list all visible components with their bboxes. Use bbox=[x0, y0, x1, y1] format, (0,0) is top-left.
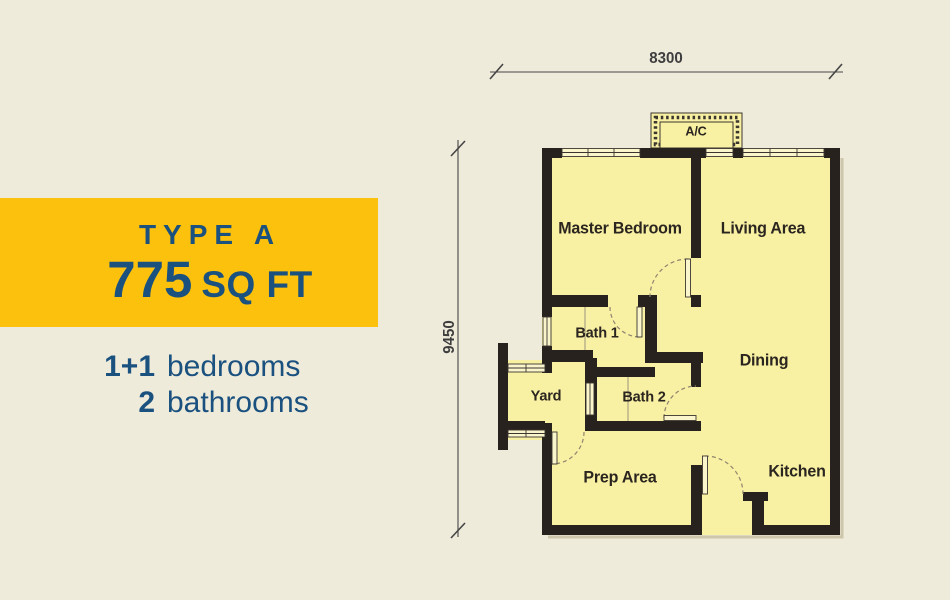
room-label-yard: Yard bbox=[531, 388, 562, 405]
height-dimension-label: 9450 bbox=[441, 320, 459, 353]
yard-top-window bbox=[508, 364, 545, 372]
entrance-door-leaf bbox=[703, 456, 708, 494]
living-area-window bbox=[743, 149, 824, 157]
room-label-living-area: Living Area bbox=[721, 220, 805, 239]
master-bedroom-door-leaf bbox=[686, 259, 691, 297]
room-label-ac: A/C bbox=[685, 124, 706, 139]
room-label-bath-1: Bath 1 bbox=[575, 325, 618, 342]
floor-plan-page: TYPE A 775 SQ FT 1+1 bedrooms 2 bathroom… bbox=[0, 0, 950, 600]
bath-2-louvre-window bbox=[586, 383, 594, 415]
room-label-dining: Dining bbox=[740, 352, 789, 371]
width-dimension-label: 8300 bbox=[649, 50, 682, 68]
yard-bottom-window bbox=[508, 430, 545, 437]
prep-area-door-leaf bbox=[552, 432, 557, 464]
floor-plan-drawing bbox=[0, 0, 950, 600]
bath-1-door-leaf bbox=[637, 307, 642, 337]
room-label-kitchen: Kitchen bbox=[768, 463, 825, 482]
bath-1-window bbox=[543, 317, 551, 346]
master-bedroom-window bbox=[562, 149, 640, 157]
room-label-bath-2: Bath 2 bbox=[622, 389, 665, 406]
room-label-master-bedroom: Master Bedroom bbox=[558, 220, 682, 239]
ac-vent-window bbox=[706, 149, 733, 157]
bath-2-door-leaf bbox=[664, 416, 696, 421]
room-label-prep-area: Prep Area bbox=[583, 469, 656, 488]
